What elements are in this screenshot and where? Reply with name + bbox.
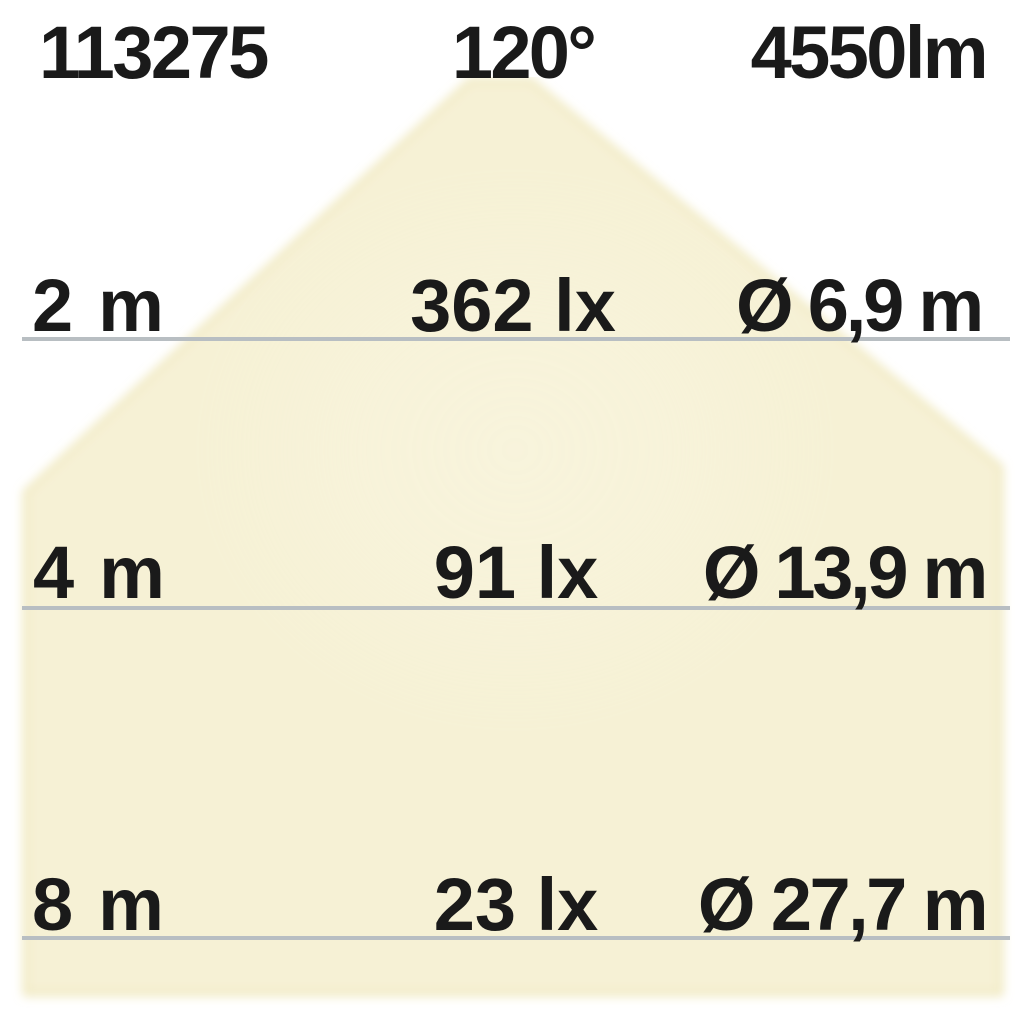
- svg-text:8 m: 8 m: [32, 863, 166, 946]
- svg-text:Ø 6,9 m: Ø 6,9 m: [736, 264, 981, 347]
- svg-text:2 m: 2 m: [32, 264, 166, 347]
- svg-text:23 lx: 23 lx: [434, 863, 599, 946]
- svg-text:4 m: 4 m: [33, 531, 167, 614]
- svg-text:91 lx: 91 lx: [434, 531, 599, 614]
- svg-text:4550lm: 4550lm: [751, 11, 986, 94]
- svg-text:Ø 13,9 m: Ø 13,9 m: [703, 531, 985, 614]
- svg-text:120°: 120°: [452, 11, 594, 94]
- svg-text:Ø 27,7 m: Ø 27,7 m: [698, 863, 986, 946]
- svg-text:362 lx: 362 lx: [410, 264, 616, 347]
- svg-text:113275: 113275: [39, 11, 268, 94]
